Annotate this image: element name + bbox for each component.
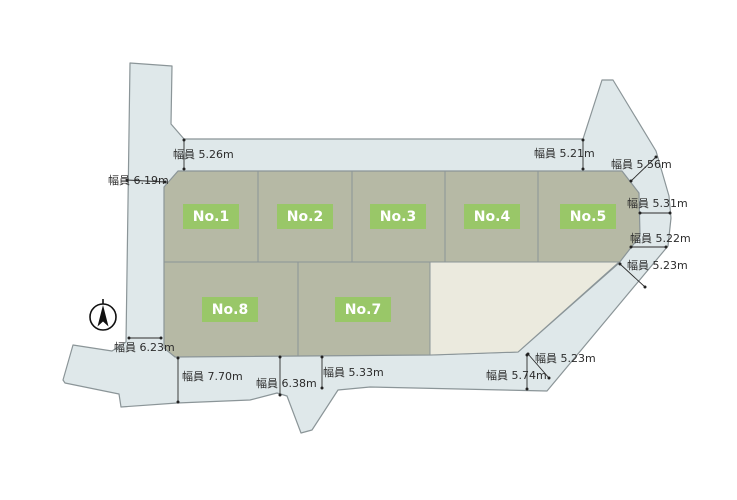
- lot-no3-label: No.3: [380, 209, 416, 225]
- dimension-label-5-23-lower: 幅員 5.23m: [535, 352, 596, 365]
- lot-no1-label: No.1: [193, 209, 229, 225]
- lot-no1: No.1: [183, 204, 239, 229]
- dimension-label-6-23: 幅員 6.23m: [114, 341, 175, 354]
- lot-no2-label: No.2: [287, 209, 323, 225]
- dimension-label-5-56: 幅員 5.56m: [611, 158, 672, 171]
- dimension-label-5-22: 幅員 5.22m: [630, 232, 691, 245]
- lot-no5-label: No.5: [570, 209, 606, 225]
- lot-no8: No.8: [202, 297, 258, 322]
- dimension-label-5-23-upper: 幅員 5.23m: [627, 259, 688, 272]
- dimension-label-5-31: 幅員 5.31m: [627, 197, 688, 210]
- dimension-label-6-19: 幅員 6.19m: [108, 174, 169, 187]
- lot-no7-label: No.7: [345, 302, 381, 318]
- lot-no3: No.3: [370, 204, 426, 229]
- lot-no4-label: No.4: [474, 209, 511, 225]
- dimension-label-5-33: 幅員 5.33m: [323, 366, 384, 379]
- lot-no4: No.4: [464, 204, 520, 229]
- lot-no8-label: No.8: [212, 302, 248, 318]
- plot-map-svg: 幅員 5.26m 幅員 5.21m 幅員 5.56m 幅員 5.31m 幅員 5…: [0, 0, 737, 500]
- lot-no5: No.5: [560, 204, 616, 229]
- dimension-label-6-38: 幅員 6.38m: [256, 377, 317, 390]
- plot-map-page: 幅員 5.26m 幅員 5.21m 幅員 5.56m 幅員 5.31m 幅員 5…: [0, 0, 737, 500]
- dimension-label-5-26: 幅員 5.26m: [173, 148, 234, 161]
- lot-no2: No.2: [277, 204, 333, 229]
- lot-no7: No.7: [335, 297, 391, 322]
- dimension-label-5-74: 幅員 5.74m: [486, 369, 547, 382]
- dimension-label-7-70: 幅員 7.70m: [182, 370, 243, 383]
- dimension-label-5-21: 幅員 5.21m: [534, 147, 595, 160]
